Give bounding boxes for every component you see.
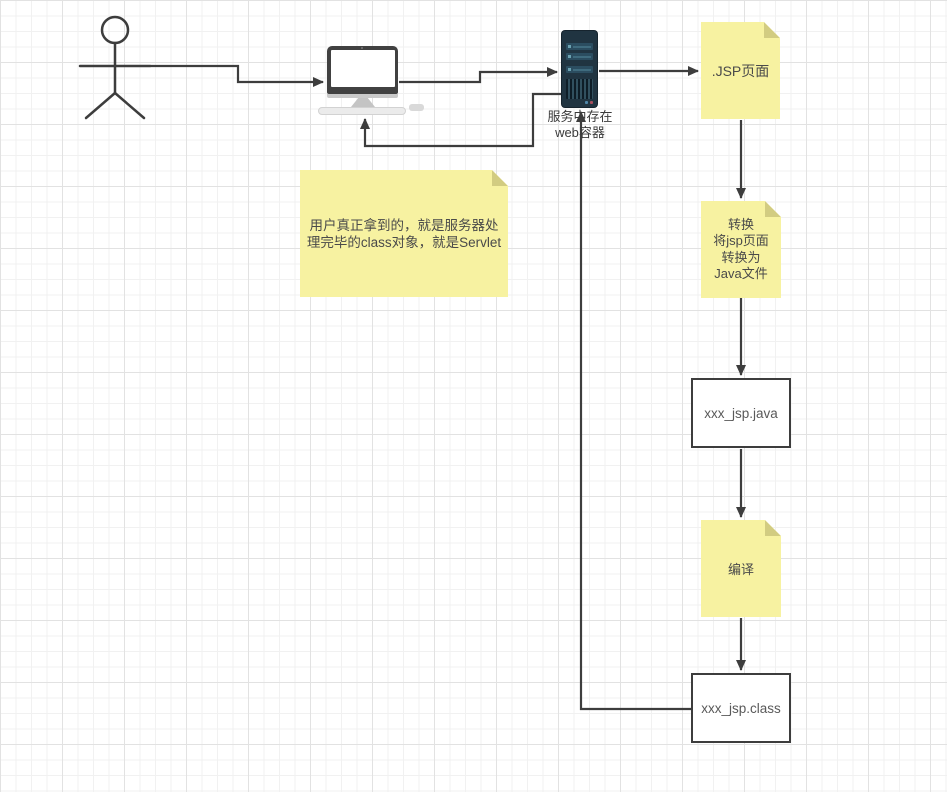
- note-fold-corner: [765, 201, 781, 217]
- note-convert: 转换 将jsp页面 转换为 Java文件: [701, 201, 781, 298]
- box-class-file: xxx_jsp.class: [691, 673, 791, 743]
- computer-monitor-icon: [327, 46, 398, 94]
- connector-class-to-server: [581, 112, 691, 709]
- actor-icon: [80, 17, 150, 118]
- monitor-camera-dot: [361, 47, 363, 49]
- server-icon: [561, 30, 598, 108]
- server-drive-slot: [566, 43, 593, 50]
- note-fold-corner: [492, 170, 508, 186]
- keyboard-icon: [318, 107, 406, 115]
- note-jsp-page: .JSP页面: [701, 22, 780, 119]
- server-drive-slot: [566, 66, 593, 73]
- mouse-icon: [409, 104, 424, 111]
- monitor-stand: [351, 98, 375, 107]
- monitor-screen: [331, 50, 395, 87]
- box-java-file: xxx_jsp.java: [691, 378, 791, 448]
- connector-user-to-computer: [150, 66, 323, 82]
- server-led-red: [590, 101, 593, 104]
- box-label: xxx_jsp.class: [701, 701, 781, 716]
- server-led-blue: [585, 101, 588, 104]
- server-drive-slot: [566, 53, 593, 60]
- note-text: 转换 将jsp页面 转换为 Java文件: [713, 217, 769, 283]
- note-text: 编译: [728, 559, 754, 578]
- note-text: 用户真正拿到的，就是服务器处 理完毕的class对象，就是Servlet: [307, 217, 501, 251]
- diagram-canvas: 服务中存在 web容器 .JSP页面 转换 将jsp页面 转换为 Java文件 …: [0, 0, 947, 792]
- note-text: .JSP页面: [712, 61, 770, 81]
- note-fold-corner: [765, 520, 781, 536]
- connector-computer-to-server: [399, 72, 557, 82]
- server-label: 服务中存在 web容器: [532, 109, 628, 140]
- connector-layer: [0, 0, 947, 792]
- monitor-chin: [327, 94, 398, 98]
- note-fold-corner: [764, 22, 780, 38]
- note-compile: 编译: [701, 520, 781, 617]
- box-label: xxx_jsp.java: [704, 406, 778, 421]
- server-grille: [566, 79, 593, 99]
- note-comment: 用户真正拿到的，就是服务器处 理完毕的class对象，就是Servlet: [300, 170, 508, 297]
